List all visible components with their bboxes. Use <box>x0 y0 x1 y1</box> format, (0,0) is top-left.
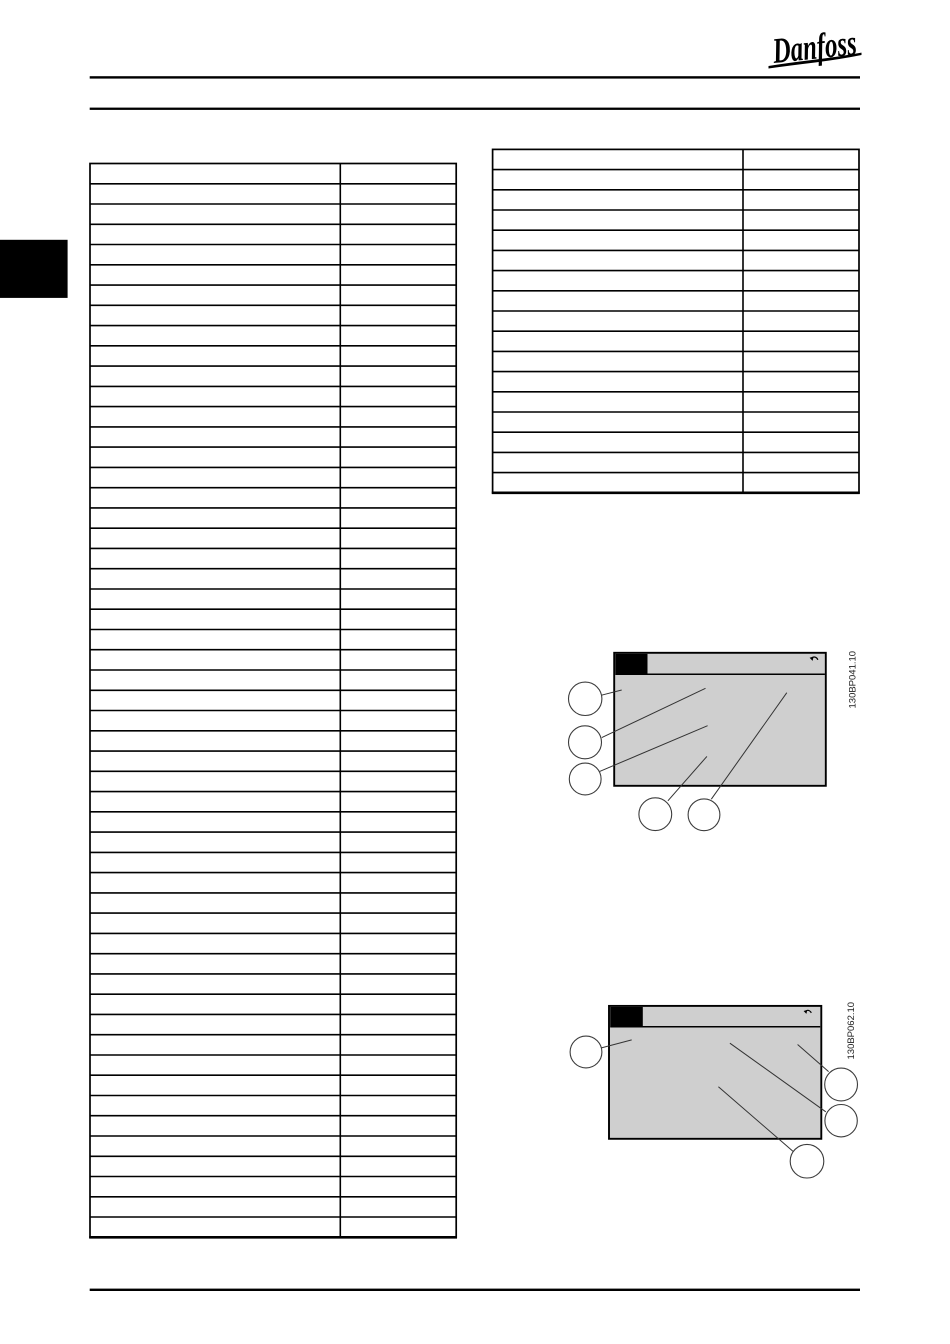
svg-text:130BP041.10: 130BP041.10 <box>848 651 859 709</box>
svg-text:Danfoss: Danfoss <box>770 22 858 71</box>
svg-text:130BP062.10: 130BP062.10 <box>846 1002 857 1060</box>
